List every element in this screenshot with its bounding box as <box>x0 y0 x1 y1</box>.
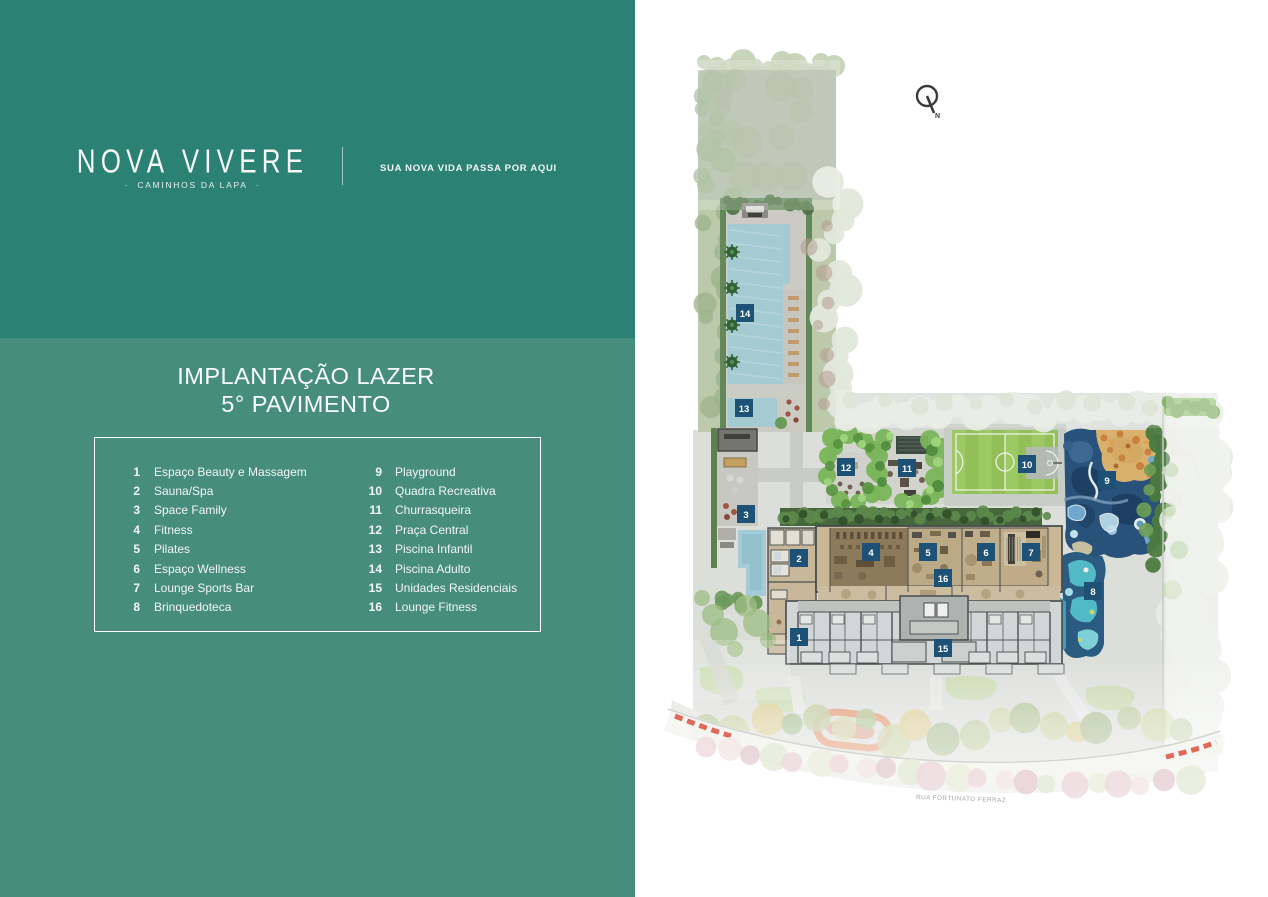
svg-text:4: 4 <box>868 548 874 559</box>
svg-text:3: 3 <box>743 510 748 521</box>
svg-text:1: 1 <box>796 633 802 644</box>
svg-text:7: 7 <box>1028 548 1033 559</box>
svg-text:2: 2 <box>796 554 801 565</box>
svg-text:16: 16 <box>938 574 949 585</box>
svg-text:9: 9 <box>1104 476 1109 487</box>
svg-text:10: 10 <box>1022 460 1033 471</box>
svg-text:13: 13 <box>739 404 750 415</box>
svg-text:15: 15 <box>938 644 949 655</box>
svg-text:8: 8 <box>1090 587 1095 598</box>
svg-text:11: 11 <box>902 464 913 475</box>
svg-text:N: N <box>935 113 940 120</box>
svg-text:6: 6 <box>983 548 988 559</box>
svg-text:5: 5 <box>925 548 931 559</box>
svg-text:14: 14 <box>740 309 751 320</box>
svg-text:12: 12 <box>841 463 852 474</box>
